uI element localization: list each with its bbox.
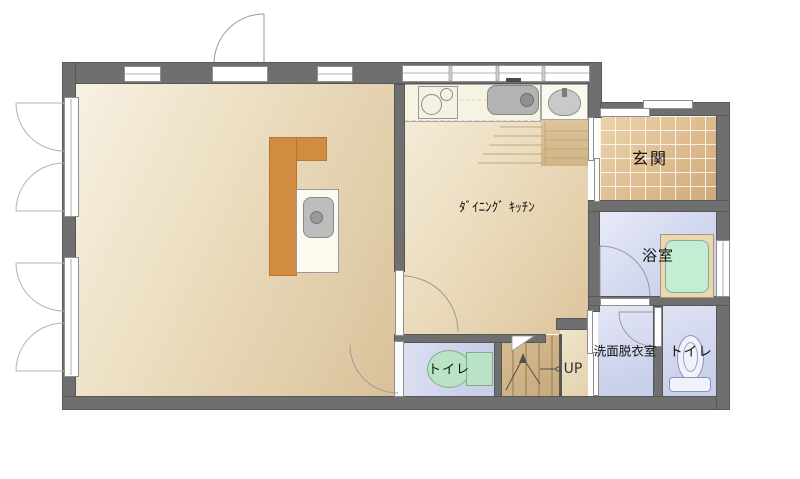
bathroom-door-opening [600,298,650,306]
wall-landing-top [556,318,590,330]
room-main-floor [76,84,395,397]
window-top-2 [317,66,353,82]
label-entrance: 玄関 [632,145,668,169]
window-kitchen-long [402,65,590,82]
entrance-sliding-door-panel-outer [643,100,693,109]
label-dining-kitchen: ﾀﾞｲﾆﾝｸﾞ ｷｯﾁﾝ [459,197,535,216]
wall-bottom [62,396,730,410]
toilet-main-tank [466,352,493,386]
label-washroom: 洗面脱衣室 [594,341,657,360]
toilet-hall-tank [669,377,711,392]
entrance-step-wood [541,120,588,166]
label-stairs-up: UP [564,361,583,377]
door-top-opening [212,66,268,82]
stairs-floor [502,335,560,397]
wall-main-dk-divider [394,84,405,272]
wall-entrance-bathroom [588,200,730,212]
window-left-upper [64,97,79,217]
kitchen-faucet [506,78,521,82]
wall-toilet-stairs-vertical [494,342,502,397]
window-bathroom-right [716,240,730,297]
floor-plan: ﾀﾞｲﾆﾝｸﾞ ｷｯﾁﾝ 玄関 浴室 洗面脱衣室 トイレ トイレ UP [0,0,800,479]
dk-door-frame [395,270,404,336]
counter-l-vertical [269,137,297,276]
entrance-sliding-door-panel-inner [600,108,650,117]
kitchen-sink-drain [520,93,534,107]
cabinet-sink-drain [310,211,323,224]
wall-toilet-stairs-top [394,334,546,343]
window-left-lower [64,257,79,377]
stove-burner-large [421,94,442,115]
washbasin-faucet [562,88,567,97]
label-bathroom: 浴室 [642,245,674,266]
stove-burner-small [440,88,453,101]
toilet-main-door-frame [394,341,404,397]
wall-stairs-edge [559,334,562,397]
dk-entrance-sliding-door-b [594,158,600,202]
washroom-sliding-door-a [587,310,593,354]
label-toilet-hall: トイレ [669,340,713,360]
window-top-1 [124,66,161,82]
dk-entrance-sliding-door-a [588,117,594,161]
label-toilet-main: トイレ [428,359,470,378]
